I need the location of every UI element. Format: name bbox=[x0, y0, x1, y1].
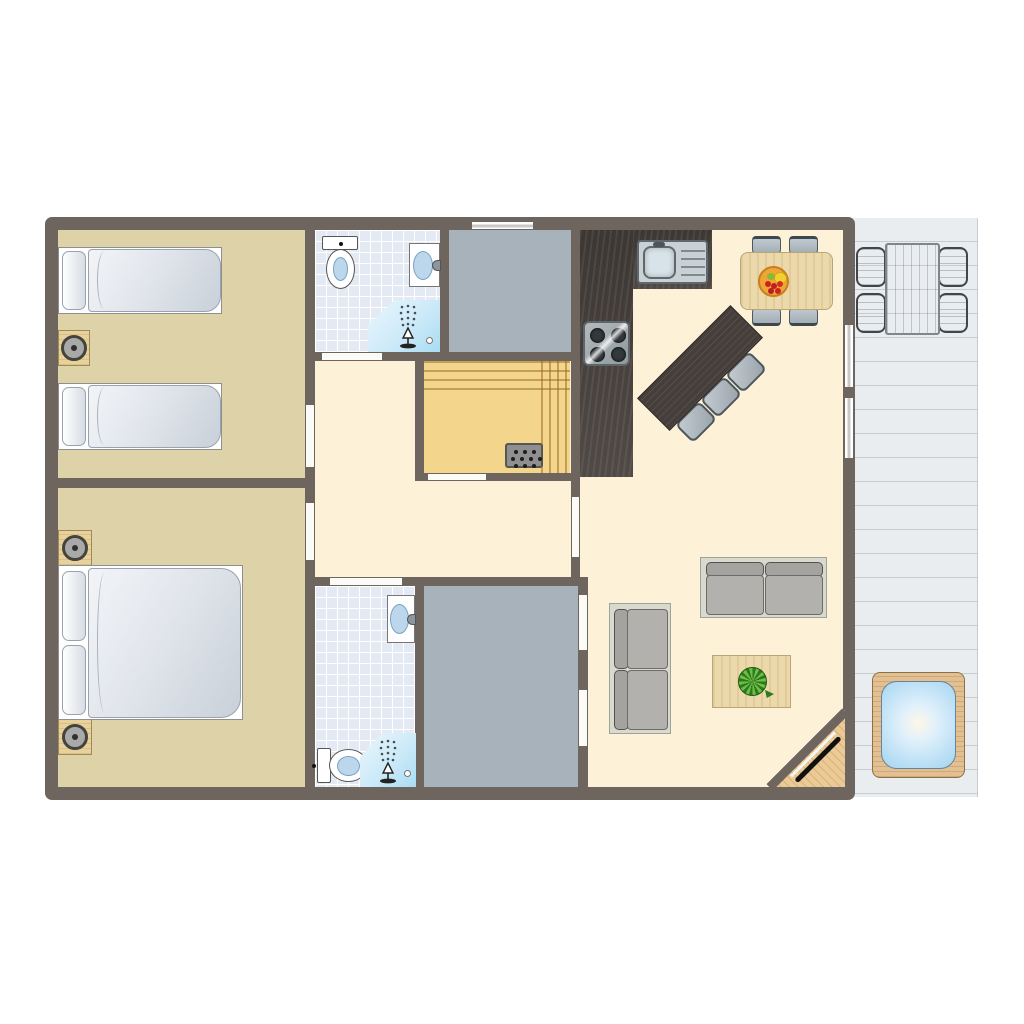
coffee-table bbox=[712, 655, 791, 708]
plant-leaf-icon bbox=[765, 690, 774, 698]
lamp-icon bbox=[61, 335, 87, 361]
sofa-seat-cushion bbox=[627, 609, 668, 669]
opening-storage-bottom-a bbox=[579, 595, 587, 650]
outdoor-chair bbox=[938, 293, 968, 333]
wall-bath-bottom-east bbox=[415, 586, 424, 787]
toilet-cistern bbox=[322, 236, 358, 250]
fruit bbox=[767, 273, 775, 280]
wall-between-bedrooms bbox=[58, 478, 305, 488]
nightstand bbox=[58, 719, 92, 755]
sofa-seat-cushion bbox=[706, 575, 764, 615]
basin-bowl bbox=[413, 251, 433, 280]
door-bathroom-bottom bbox=[330, 578, 402, 585]
outdoor-chair bbox=[856, 247, 886, 287]
duvet bbox=[88, 568, 241, 718]
outdoor-chair bbox=[938, 247, 968, 287]
fruit-bowl bbox=[758, 266, 789, 297]
tap-icon bbox=[407, 614, 416, 625]
lamp-icon bbox=[62, 724, 88, 750]
sofa-horizontal bbox=[700, 557, 827, 618]
pillow bbox=[62, 387, 86, 446]
sink-bowl bbox=[643, 246, 676, 279]
duvet bbox=[88, 249, 221, 312]
single-bed bbox=[58, 383, 222, 450]
pillow bbox=[62, 571, 86, 641]
nightstand bbox=[58, 330, 90, 366]
burner-icon bbox=[611, 347, 626, 362]
pillow bbox=[62, 645, 86, 715]
dining-table bbox=[740, 252, 833, 310]
flush-button-icon bbox=[339, 242, 343, 246]
drain-icon bbox=[404, 770, 411, 777]
sink-drainboard bbox=[681, 250, 705, 278]
sofa-vertical bbox=[609, 603, 671, 734]
shower-spray-icon bbox=[393, 302, 423, 350]
burner-icon bbox=[590, 328, 605, 343]
pillow bbox=[62, 251, 86, 310]
dining-chair bbox=[752, 308, 781, 326]
toilet-bowl-inner bbox=[333, 257, 348, 281]
shower-spray-icon bbox=[373, 737, 403, 785]
floor-plan bbox=[0, 0, 1024, 1024]
fruit bbox=[774, 272, 787, 284]
fruit bbox=[765, 281, 771, 287]
sauna-bench-right bbox=[541, 361, 570, 473]
door-bathroom-top bbox=[322, 353, 382, 360]
hot-tub-water bbox=[881, 681, 956, 769]
storage-bottom-floor bbox=[424, 586, 578, 787]
flush-button-icon bbox=[312, 764, 316, 768]
tap-icon bbox=[432, 260, 441, 271]
washbasin bbox=[387, 595, 415, 643]
plant-icon bbox=[738, 667, 767, 696]
hob bbox=[583, 321, 630, 366]
nightstand bbox=[58, 530, 92, 566]
sauna-stones bbox=[514, 450, 518, 454]
outdoor-table bbox=[885, 243, 940, 335]
kitchen-sink bbox=[637, 240, 708, 284]
storage-top-floor bbox=[449, 230, 571, 352]
sofa-seat-cushion bbox=[765, 575, 823, 615]
washbasin bbox=[409, 243, 440, 287]
dining-chair bbox=[789, 308, 818, 326]
door-bedroom-double bbox=[306, 503, 314, 560]
sauna-heater bbox=[505, 443, 543, 468]
window-top bbox=[472, 222, 533, 229]
outdoor-chair bbox=[856, 293, 886, 333]
sink-faucet-icon bbox=[653, 242, 665, 247]
window-east-a bbox=[845, 325, 853, 387]
drain-icon bbox=[426, 337, 433, 344]
opening-storage-bottom-b bbox=[579, 690, 587, 746]
wall-bath-top-east bbox=[440, 230, 449, 361]
duvet bbox=[88, 385, 221, 448]
door-living bbox=[572, 497, 579, 557]
lamp-icon bbox=[62, 535, 88, 561]
window-east-b bbox=[845, 398, 853, 458]
burner-icon bbox=[611, 328, 626, 343]
sofa-seat-cushion bbox=[627, 670, 668, 730]
double-bed bbox=[58, 565, 243, 720]
door-sauna bbox=[428, 474, 486, 480]
hot-tub bbox=[872, 672, 965, 778]
burner-icon bbox=[590, 347, 605, 362]
wall-sauna-west bbox=[415, 352, 424, 481]
toilet-bowl-inner bbox=[337, 756, 360, 776]
door-bedroom-twin bbox=[306, 405, 314, 467]
single-bed bbox=[58, 247, 222, 314]
